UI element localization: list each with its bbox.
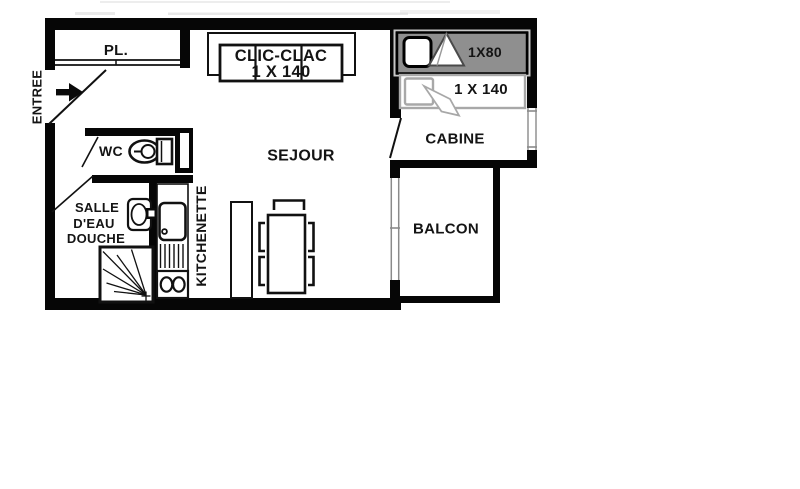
wall-top	[45, 18, 395, 30]
bunk-bed-banner	[395, 31, 530, 76]
label-bunk-size: 1X80	[468, 44, 502, 60]
chair-left-1	[260, 223, 266, 251]
wall-cabine-top	[390, 18, 537, 30]
scan-smudge	[100, 1, 450, 3]
label-kitchenette: KITCHENETTE	[193, 185, 209, 286]
kitchenette-counter	[157, 184, 188, 298]
floorplan-canvas: PL. ENTREE WC SALLE D'EAU DOUCHE KITCHEN…	[0, 0, 800, 489]
label-wc: WC	[99, 143, 123, 159]
label-deau: D'EAU	[73, 216, 114, 231]
label-cabine: CABINE	[425, 131, 484, 148]
wall-balcony-bottom	[398, 296, 500, 303]
burner-icon	[173, 277, 185, 291]
label-balcon: BALCON	[413, 221, 479, 238]
pl-sliding-door	[55, 60, 180, 65]
shower-icon	[100, 247, 153, 302]
label-salle: SALLE	[75, 200, 119, 215]
burner-icon	[161, 277, 173, 291]
entry-arrow-icon	[56, 83, 83, 102]
cabine-window	[527, 108, 537, 150]
cabine-door-swing	[390, 118, 401, 158]
label-douche: DOUCHE	[67, 231, 125, 246]
wc-door-swing	[82, 137, 98, 167]
wall-bottom	[45, 298, 401, 310]
label-placard: PL.	[104, 42, 128, 59]
balcony-window	[390, 178, 400, 280]
chair-left-2	[260, 257, 266, 285]
wall-left-upper	[45, 18, 55, 70]
wall-sejour-balcony-upper	[390, 160, 400, 178]
scan-smudge	[400, 10, 500, 14]
dining-table	[268, 215, 305, 293]
wall-closet-right	[180, 18, 190, 68]
chair-right-1	[308, 223, 314, 251]
dining-table-set	[260, 201, 314, 294]
scan-smudge	[168, 13, 408, 16]
chair-top	[274, 201, 304, 211]
wall-balcony-right	[493, 168, 500, 303]
wall-sejour-balcony-lower	[390, 280, 400, 310]
wall-wc-bottom	[92, 175, 193, 183]
sink-tap	[162, 229, 167, 234]
wall-left-lower	[45, 123, 55, 310]
chair-right-2	[308, 257, 314, 285]
scan-smudge	[75, 12, 115, 15]
duct-column-inner	[180, 133, 189, 168]
pillow-icon	[404, 38, 431, 67]
entry-door-swing	[49, 70, 106, 124]
scan-artifacts	[75, 1, 500, 15]
wall-cabine-bottom	[393, 160, 537, 168]
door-swings	[49, 70, 401, 212]
label-sofa-size: 1 X 140	[252, 63, 311, 81]
label-sejour: SEJOUR	[267, 148, 335, 165]
bar-counter	[231, 202, 252, 298]
toilet-cistern	[157, 139, 172, 164]
label-entree: ENTREE	[30, 70, 45, 125]
toilet-icon	[130, 139, 173, 164]
wall-wc-top	[85, 128, 177, 136]
label-bed-size: 1 X 140	[454, 81, 508, 98]
